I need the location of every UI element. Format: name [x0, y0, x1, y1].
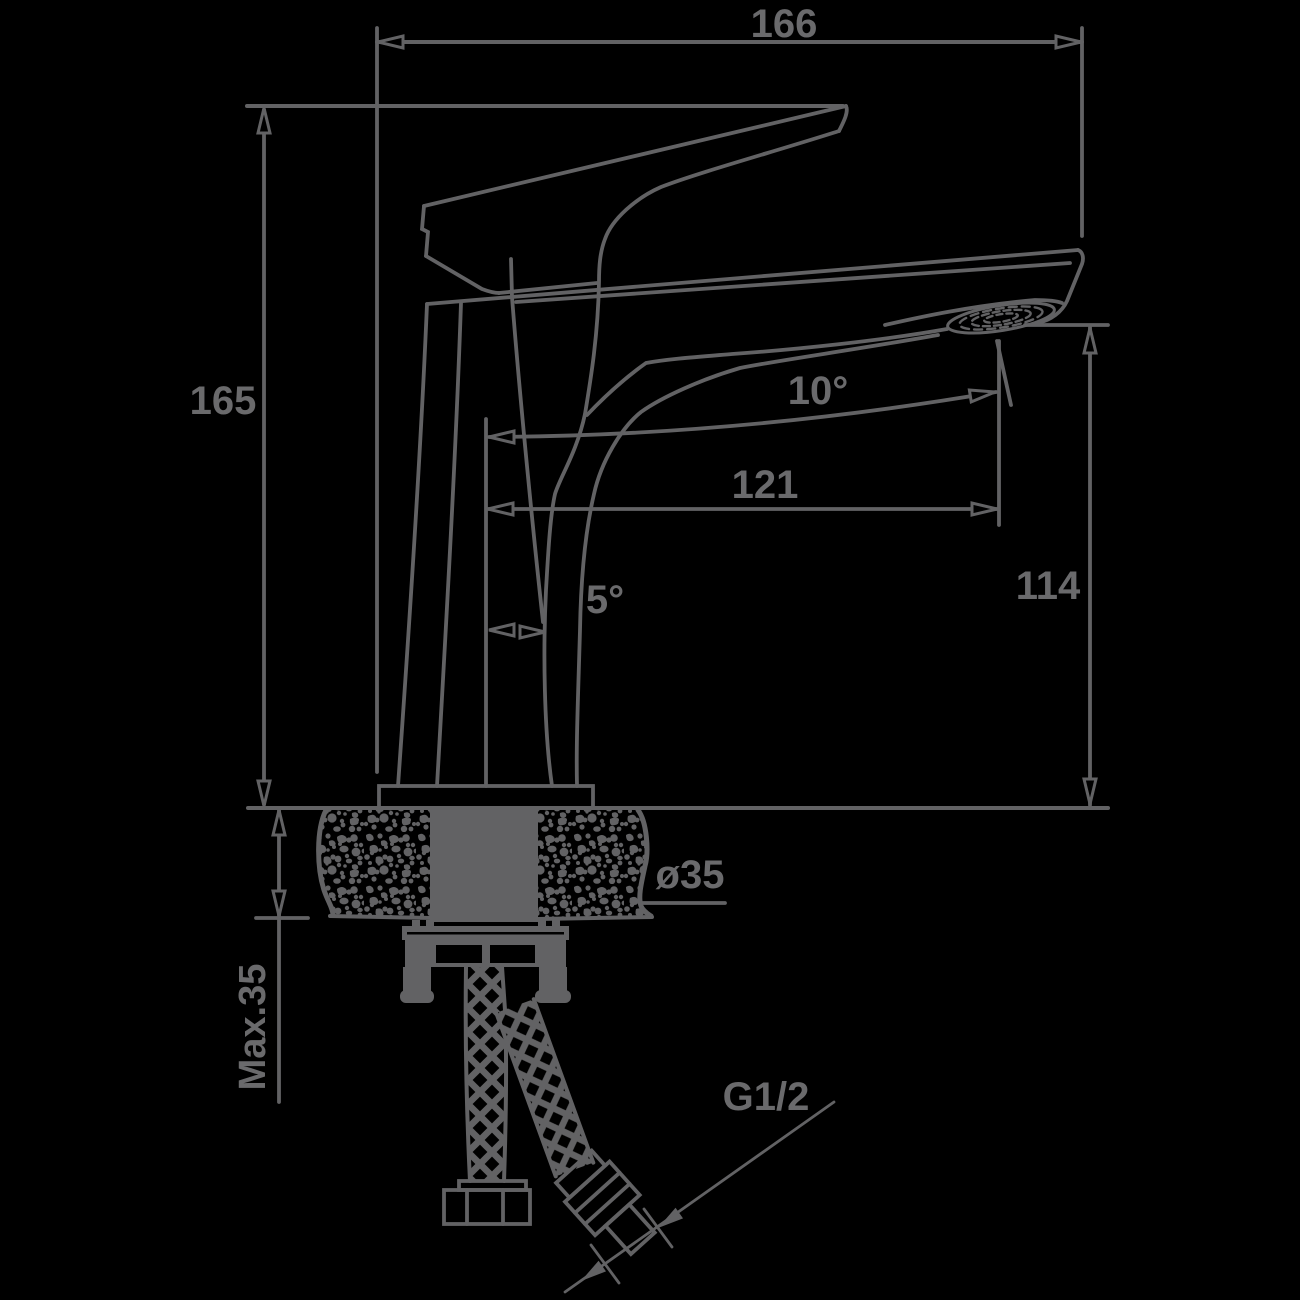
- svg-text:114: 114: [1016, 564, 1081, 608]
- svg-text:121: 121: [732, 463, 799, 507]
- svg-text:Max.35: Max.35: [232, 964, 274, 1091]
- svg-text:10°: 10°: [788, 369, 849, 413]
- svg-text:5°: 5°: [586, 578, 624, 622]
- svg-text:G1/2: G1/2: [723, 1075, 810, 1119]
- svg-text:166: 166: [751, 2, 818, 46]
- svg-text:ø35: ø35: [656, 853, 725, 897]
- svg-text:165: 165: [190, 379, 257, 423]
